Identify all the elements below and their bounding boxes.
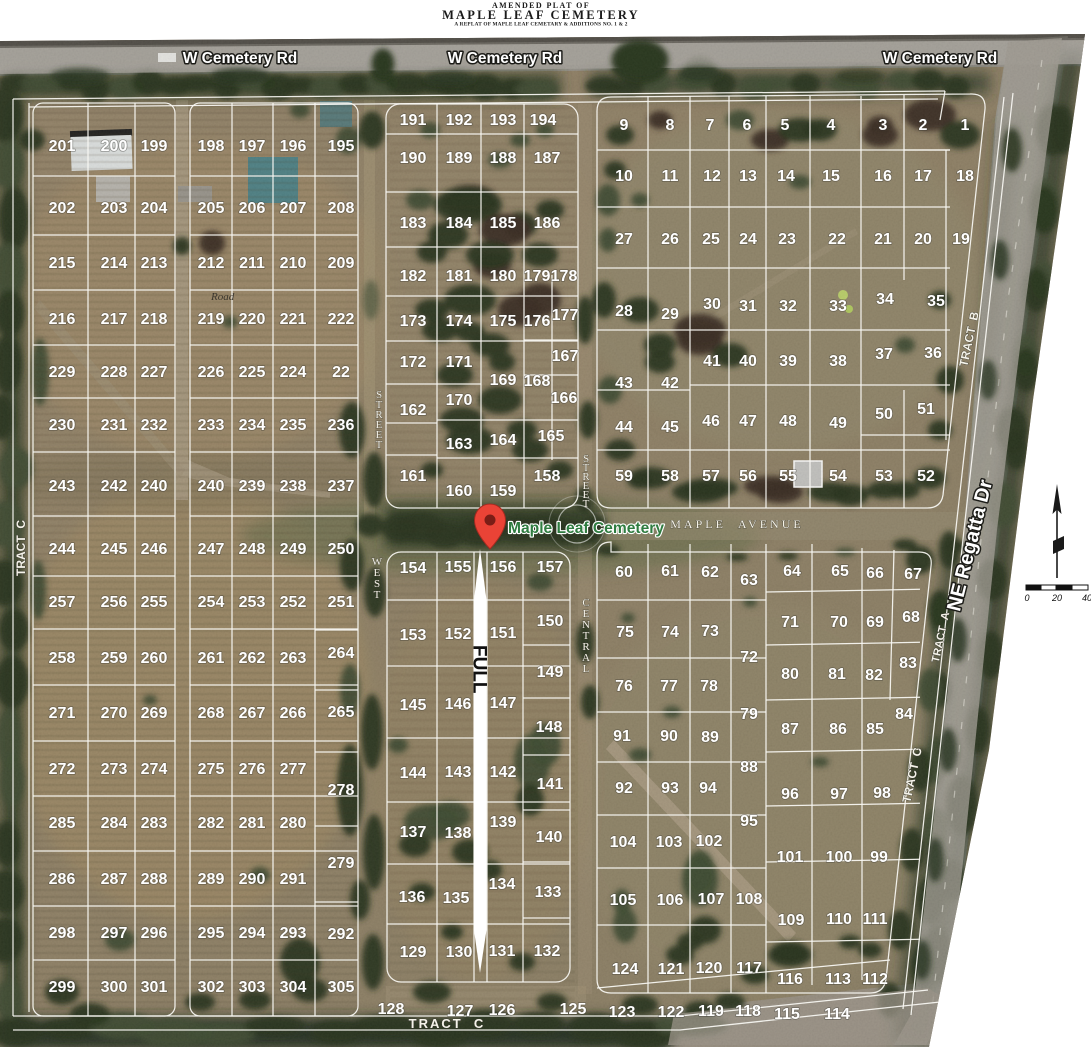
svg-text:105: 105	[610, 892, 637, 909]
svg-text:304: 304	[280, 979, 307, 996]
svg-text:25: 25	[702, 231, 720, 248]
svg-text:152: 152	[445, 626, 472, 643]
svg-text:137: 137	[400, 824, 427, 841]
svg-text:80: 80	[781, 666, 799, 683]
svg-text:77: 77	[660, 678, 678, 695]
svg-text:162: 162	[400, 402, 427, 419]
svg-text:280: 280	[280, 815, 307, 832]
svg-text:172: 172	[400, 354, 427, 371]
svg-text:FULL: FULL	[469, 645, 490, 694]
svg-text:74: 74	[661, 624, 679, 641]
svg-text:34: 34	[876, 291, 894, 308]
svg-text:TRACT C: TRACT C	[14, 520, 28, 576]
svg-text:MAPLE LEAF CEMETERY: MAPLE LEAF CEMETERY	[442, 8, 640, 22]
svg-text:277: 277	[280, 761, 307, 778]
svg-text:184: 184	[446, 215, 473, 232]
svg-text:198: 198	[198, 138, 225, 155]
svg-text:5: 5	[781, 117, 790, 134]
svg-text:40: 40	[739, 353, 757, 370]
svg-text:100: 100	[826, 849, 853, 866]
svg-text:93: 93	[661, 780, 679, 797]
svg-text:27: 27	[615, 231, 633, 248]
svg-text:24: 24	[739, 231, 757, 248]
svg-text:128: 128	[378, 1001, 405, 1018]
svg-text:75: 75	[616, 624, 634, 641]
svg-text:91: 91	[613, 728, 631, 745]
svg-text:220: 220	[239, 311, 266, 328]
svg-text:218: 218	[141, 311, 168, 328]
svg-text:275: 275	[198, 761, 225, 778]
svg-text:30: 30	[703, 296, 721, 313]
svg-text:189: 189	[446, 150, 473, 167]
svg-text:237: 237	[328, 478, 355, 495]
svg-text:273: 273	[101, 761, 128, 778]
svg-text:229: 229	[49, 364, 76, 381]
svg-text:281: 281	[239, 815, 266, 832]
svg-text:6: 6	[743, 117, 752, 134]
svg-text:299: 299	[49, 979, 76, 996]
svg-text:139: 139	[490, 814, 517, 831]
svg-text:Maple Leaf Cemetery: Maple Leaf Cemetery	[508, 520, 664, 537]
svg-text:305: 305	[328, 979, 355, 996]
svg-text:216: 216	[49, 311, 76, 328]
svg-text:136: 136	[399, 889, 426, 906]
svg-text:22: 22	[332, 364, 350, 381]
svg-text:102: 102	[696, 833, 723, 850]
svg-text:11: 11	[662, 168, 679, 185]
svg-text:13: 13	[739, 168, 757, 185]
svg-text:156: 156	[490, 559, 517, 576]
svg-text:159: 159	[490, 483, 517, 500]
svg-text:214: 214	[101, 255, 128, 272]
svg-text:187: 187	[534, 150, 561, 167]
svg-text:295: 295	[198, 925, 225, 942]
svg-text:57: 57	[702, 468, 720, 485]
svg-text:115: 115	[774, 1006, 800, 1023]
svg-text:264: 264	[328, 645, 355, 662]
svg-text:267: 267	[239, 705, 266, 722]
svg-text:66: 66	[866, 565, 884, 582]
svg-text:59: 59	[615, 468, 633, 485]
svg-text:288: 288	[141, 871, 168, 888]
svg-text:269: 269	[141, 705, 168, 722]
svg-text:227: 227	[141, 364, 168, 381]
svg-text:81: 81	[828, 666, 846, 683]
svg-text:298: 298	[49, 925, 76, 942]
svg-text:142: 142	[490, 764, 517, 781]
svg-text:230: 230	[49, 417, 76, 434]
svg-text:48: 48	[779, 413, 797, 430]
svg-text:207: 207	[280, 200, 307, 217]
svg-text:54: 54	[829, 468, 847, 485]
svg-text:2: 2	[919, 117, 928, 134]
svg-text:69: 69	[866, 614, 884, 631]
svg-text:123: 123	[609, 1004, 636, 1021]
svg-text:62: 62	[701, 564, 719, 581]
svg-text:185: 185	[490, 215, 517, 232]
svg-text:MAPLE AVENUE: MAPLE AVENUE	[670, 517, 803, 531]
svg-text:195: 195	[328, 138, 355, 155]
svg-text:3: 3	[879, 117, 888, 134]
svg-text:210: 210	[280, 255, 307, 272]
svg-text:110: 110	[826, 911, 852, 928]
svg-text:297: 297	[101, 925, 128, 942]
svg-text:70: 70	[830, 614, 848, 631]
svg-text:109: 109	[778, 912, 805, 929]
svg-text:296: 296	[141, 925, 168, 942]
svg-text:38: 38	[829, 353, 847, 370]
svg-text:212: 212	[198, 255, 225, 272]
svg-text:200: 200	[101, 138, 128, 155]
svg-text:18: 18	[956, 168, 974, 185]
svg-text:126: 126	[489, 1002, 516, 1019]
svg-text:50: 50	[875, 406, 893, 423]
svg-text:51: 51	[917, 401, 935, 418]
svg-text:10: 10	[615, 168, 633, 185]
svg-text:108: 108	[736, 891, 763, 908]
svg-text:78: 78	[700, 678, 718, 695]
svg-text:122: 122	[658, 1004, 685, 1021]
svg-text:16: 16	[874, 168, 892, 185]
svg-text:249: 249	[280, 541, 307, 558]
svg-text:28: 28	[615, 303, 633, 320]
svg-text:173: 173	[400, 313, 427, 330]
svg-text:63: 63	[740, 572, 758, 589]
svg-text:160: 160	[446, 483, 473, 500]
svg-text:224: 224	[280, 364, 307, 381]
svg-text:89: 89	[701, 729, 719, 746]
svg-text:221: 221	[280, 311, 307, 328]
svg-text:256: 256	[101, 594, 128, 611]
svg-text:283: 283	[141, 815, 168, 832]
svg-text:W Cemetery Rd: W Cemetery Rd	[883, 50, 998, 67]
svg-text:247: 247	[198, 541, 225, 558]
svg-text:14: 14	[777, 168, 795, 185]
svg-text:168: 168	[524, 373, 551, 390]
svg-text:203: 203	[101, 200, 128, 217]
svg-text:278: 278	[328, 782, 355, 799]
svg-text:171: 171	[446, 354, 473, 371]
svg-text:233: 233	[198, 417, 225, 434]
svg-text:199: 199	[141, 138, 168, 155]
svg-text:167: 167	[552, 348, 579, 365]
svg-text:197: 197	[239, 138, 266, 155]
svg-text:234: 234	[239, 417, 266, 434]
svg-text:125: 125	[560, 1001, 587, 1018]
svg-text:22: 22	[828, 231, 846, 248]
svg-text:174: 174	[446, 313, 473, 330]
svg-text:250: 250	[328, 541, 355, 558]
svg-text:255: 255	[141, 594, 168, 611]
svg-text:95: 95	[740, 813, 758, 830]
svg-text:145: 145	[400, 697, 427, 714]
svg-text:12: 12	[703, 168, 721, 185]
svg-text:65: 65	[831, 563, 849, 580]
svg-text:244: 244	[49, 541, 76, 558]
svg-text:120: 120	[696, 960, 723, 977]
svg-text:41: 41	[703, 353, 721, 370]
svg-text:290: 290	[239, 871, 266, 888]
svg-text:217: 217	[101, 311, 128, 328]
svg-text:31: 31	[739, 298, 757, 315]
svg-text:124: 124	[612, 961, 639, 978]
svg-text:56: 56	[739, 468, 757, 485]
svg-text:151: 151	[490, 625, 517, 642]
svg-text:37: 37	[875, 346, 893, 363]
svg-text:163: 163	[446, 436, 473, 453]
svg-text:39: 39	[779, 353, 797, 370]
svg-text:86: 86	[829, 721, 847, 738]
svg-text:239: 239	[239, 478, 266, 495]
svg-text:147: 147	[490, 695, 517, 712]
svg-text:46: 46	[702, 413, 720, 430]
svg-text:232: 232	[141, 417, 168, 434]
svg-text:119: 119	[698, 1003, 724, 1020]
svg-text:101: 101	[777, 849, 804, 866]
svg-text:302: 302	[198, 979, 225, 996]
svg-text:240: 240	[198, 478, 225, 495]
svg-text:169: 169	[490, 372, 517, 389]
svg-text:235: 235	[280, 417, 307, 434]
svg-text:262: 262	[239, 650, 266, 667]
svg-text:209: 209	[328, 255, 355, 272]
svg-text:T: T	[376, 439, 383, 451]
svg-text:252: 252	[280, 594, 307, 611]
svg-text:35: 35	[927, 293, 945, 310]
svg-text:246: 246	[141, 541, 168, 558]
svg-text:60: 60	[615, 564, 633, 581]
svg-text:161: 161	[400, 468, 427, 485]
svg-text:154: 154	[400, 560, 427, 577]
svg-text:194: 194	[530, 112, 557, 129]
svg-text:8: 8	[666, 117, 675, 134]
svg-text:A REPLAT OF MAPLE LEAF CEMETAR: A REPLAT OF MAPLE LEAF CEMETARY & ADDITI…	[454, 22, 627, 28]
svg-text:191: 191	[400, 112, 427, 129]
svg-text:W Cemetery Rd: W Cemetery Rd	[448, 50, 563, 67]
svg-text:243: 243	[49, 478, 76, 495]
svg-text:40: 40	[1082, 593, 1091, 603]
svg-text:205: 205	[198, 200, 225, 217]
svg-text:286: 286	[49, 871, 76, 888]
svg-text:153: 153	[400, 627, 427, 644]
svg-text:107: 107	[698, 891, 725, 908]
svg-text:45: 45	[661, 419, 679, 436]
svg-text:157: 157	[537, 559, 564, 576]
svg-text:179: 179	[524, 268, 551, 285]
svg-text:112: 112	[862, 971, 888, 988]
svg-text:TRACT C: TRACT C	[409, 1016, 486, 1031]
svg-text:240: 240	[141, 478, 168, 495]
svg-text:L: L	[583, 663, 590, 675]
svg-text:253: 253	[239, 594, 266, 611]
svg-text:272: 272	[49, 761, 76, 778]
svg-text:188: 188	[490, 150, 517, 167]
svg-text:261: 261	[198, 650, 225, 667]
svg-text:170: 170	[446, 392, 473, 409]
svg-text:47: 47	[739, 413, 757, 430]
svg-text:42: 42	[661, 375, 679, 392]
svg-text:192: 192	[446, 112, 473, 129]
svg-text:292: 292	[328, 926, 355, 943]
svg-text:282: 282	[198, 815, 225, 832]
svg-text:177: 177	[552, 307, 579, 324]
svg-text:186: 186	[534, 215, 561, 232]
svg-text:138: 138	[445, 825, 472, 842]
svg-text:52: 52	[917, 468, 935, 485]
svg-text:175: 175	[490, 313, 517, 330]
svg-text:121: 121	[658, 961, 685, 978]
svg-text:9: 9	[620, 117, 629, 134]
svg-text:44: 44	[615, 419, 633, 436]
svg-text:83: 83	[899, 655, 917, 672]
svg-text:271: 271	[49, 705, 76, 722]
svg-text:134: 134	[489, 876, 516, 893]
svg-text:129: 129	[400, 944, 427, 961]
svg-text:165: 165	[538, 428, 565, 445]
svg-text:67: 67	[904, 566, 922, 583]
svg-text:226: 226	[198, 364, 225, 381]
svg-text:201: 201	[49, 138, 76, 155]
svg-text:176: 176	[524, 313, 551, 330]
svg-text:111: 111	[863, 911, 888, 928]
svg-text:257: 257	[49, 594, 76, 611]
svg-text:4: 4	[827, 117, 836, 134]
svg-text:88: 88	[740, 759, 758, 776]
svg-text:181: 181	[446, 268, 473, 285]
svg-text:114: 114	[824, 1006, 850, 1023]
svg-text:148: 148	[536, 719, 563, 736]
svg-text:258: 258	[49, 650, 76, 667]
svg-text:106: 106	[657, 892, 684, 909]
svg-text:248: 248	[239, 541, 266, 558]
svg-text:270: 270	[101, 705, 128, 722]
svg-text:204: 204	[141, 200, 168, 217]
svg-text:211: 211	[239, 255, 265, 272]
svg-text:140: 140	[536, 829, 563, 846]
svg-text:94: 94	[699, 780, 717, 797]
svg-text:245: 245	[101, 541, 128, 558]
svg-text:53: 53	[875, 468, 893, 485]
svg-text:135: 135	[443, 890, 470, 907]
svg-text:104: 104	[610, 834, 637, 851]
svg-text:215: 215	[49, 255, 76, 272]
svg-text:55: 55	[779, 468, 797, 485]
svg-text:36: 36	[924, 345, 942, 362]
svg-text:85: 85	[866, 721, 884, 738]
svg-text:236: 236	[328, 417, 355, 434]
svg-text:291: 291	[280, 871, 307, 888]
svg-text:79: 79	[740, 706, 758, 723]
svg-text:7: 7	[706, 117, 715, 134]
svg-text:116: 116	[777, 971, 803, 988]
svg-text:84: 84	[895, 706, 913, 723]
svg-text:303: 303	[239, 979, 266, 996]
svg-text:276: 276	[239, 761, 266, 778]
svg-text:64: 64	[783, 563, 801, 580]
svg-text:87: 87	[781, 721, 799, 738]
svg-text:58: 58	[661, 468, 679, 485]
svg-text:21: 21	[874, 231, 892, 248]
svg-text:149: 149	[537, 664, 564, 681]
svg-text:146: 146	[445, 696, 472, 713]
svg-text:90: 90	[660, 728, 678, 745]
svg-text:287: 287	[101, 871, 128, 888]
svg-text:141: 141	[537, 776, 564, 793]
svg-text:228: 228	[101, 364, 128, 381]
svg-text:260: 260	[141, 650, 168, 667]
svg-text:259: 259	[101, 650, 128, 667]
svg-text:158: 158	[534, 468, 561, 485]
svg-text:26: 26	[661, 231, 679, 248]
svg-text:164: 164	[490, 432, 517, 449]
svg-text:193: 193	[490, 112, 517, 129]
svg-text:17: 17	[914, 168, 932, 185]
svg-text:294: 294	[239, 925, 266, 942]
svg-text:300: 300	[101, 979, 128, 996]
svg-text:144: 144	[400, 765, 427, 782]
svg-text:166: 166	[551, 390, 578, 407]
svg-text:182: 182	[400, 268, 427, 285]
svg-text:97: 97	[830, 786, 848, 803]
svg-text:32: 32	[779, 298, 797, 315]
svg-text:225: 225	[239, 364, 266, 381]
svg-text:274: 274	[141, 761, 168, 778]
svg-text:301: 301	[141, 979, 168, 996]
svg-text:43: 43	[615, 375, 633, 392]
svg-text:49: 49	[829, 415, 847, 432]
svg-text:133: 133	[535, 884, 562, 901]
svg-text:98: 98	[873, 785, 891, 802]
svg-text:0: 0	[1024, 593, 1029, 603]
svg-text:19: 19	[952, 231, 970, 248]
svg-text:92: 92	[615, 780, 633, 797]
svg-text:178: 178	[551, 268, 578, 285]
svg-text:68: 68	[902, 609, 920, 626]
svg-text:196: 196	[280, 138, 307, 155]
svg-text:263: 263	[280, 650, 307, 667]
svg-text:242: 242	[101, 478, 128, 495]
svg-text:130: 130	[446, 944, 473, 961]
svg-text:231: 231	[101, 417, 128, 434]
svg-text:82: 82	[865, 667, 883, 684]
svg-text:1: 1	[961, 117, 970, 134]
svg-text:293: 293	[280, 925, 307, 942]
svg-text:150: 150	[537, 613, 564, 630]
svg-text:222: 222	[328, 311, 355, 328]
svg-text:76: 76	[615, 678, 633, 695]
svg-text:15: 15	[822, 168, 840, 185]
svg-text:T: T	[374, 589, 381, 601]
svg-text:268: 268	[198, 705, 225, 722]
svg-text:190: 190	[400, 150, 427, 167]
svg-text:103: 103	[656, 834, 683, 851]
svg-text:71: 71	[781, 614, 799, 631]
svg-text:113: 113	[825, 971, 851, 988]
svg-text:23: 23	[778, 231, 796, 248]
svg-text:289: 289	[198, 871, 225, 888]
svg-text:118: 118	[735, 1003, 761, 1020]
svg-text:266: 266	[280, 705, 307, 722]
svg-text:265: 265	[328, 704, 355, 721]
svg-text:99: 99	[870, 849, 888, 866]
svg-text:W Cemetery Rd: W Cemetery Rd	[183, 50, 298, 67]
svg-text:72: 72	[740, 649, 758, 666]
svg-text:183: 183	[400, 215, 427, 232]
svg-text:285: 285	[49, 815, 76, 832]
svg-text:238: 238	[280, 478, 307, 495]
svg-text:33: 33	[829, 298, 847, 315]
svg-text:20: 20	[1051, 593, 1062, 603]
